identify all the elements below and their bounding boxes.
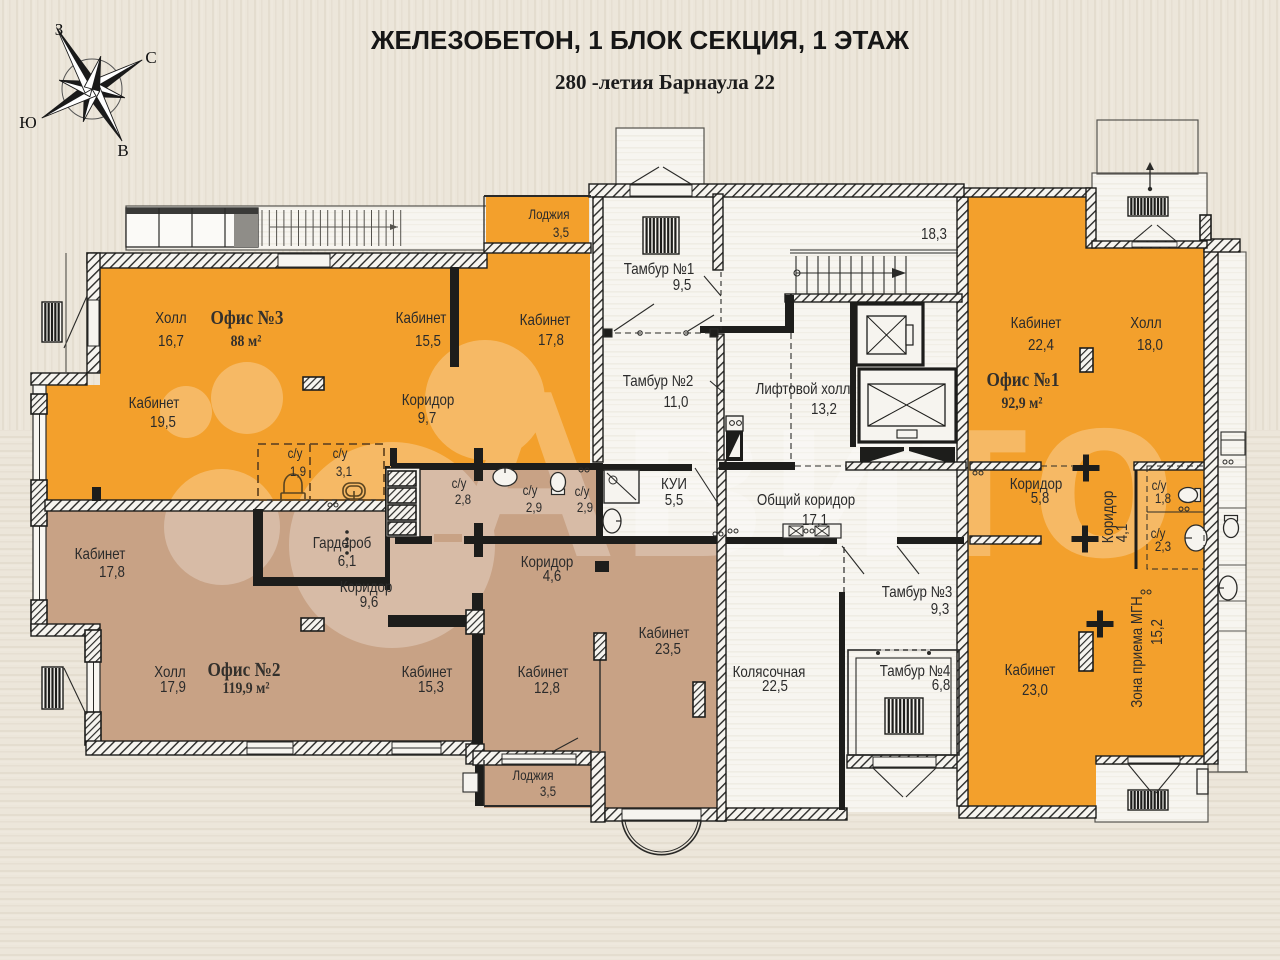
svg-text:Тамбур №2: Тамбур №2 xyxy=(623,373,694,390)
svg-text:Офис №3: Офис №3 xyxy=(211,307,284,330)
svg-text:Кабинет: Кабинет xyxy=(520,312,571,329)
svg-text:16,7: 16,7 xyxy=(158,333,184,350)
svg-text:3,5: 3,5 xyxy=(553,225,569,240)
svg-text:С: С xyxy=(145,48,156,67)
svg-text:Кабинет: Кабинет xyxy=(639,625,690,642)
svg-text:9,3: 9,3 xyxy=(931,601,950,618)
svg-text:Тамбур №3: Тамбур №3 xyxy=(882,584,953,601)
svg-text:18,0: 18,0 xyxy=(1137,337,1163,354)
svg-text:5,8: 5,8 xyxy=(1031,490,1050,507)
svg-text:19,5: 19,5 xyxy=(150,414,176,431)
svg-text:22,5: 22,5 xyxy=(762,678,788,695)
svg-text:23,5: 23,5 xyxy=(655,641,681,658)
svg-text:2,9: 2,9 xyxy=(577,500,593,515)
svg-text:2,9: 2,9 xyxy=(526,500,542,515)
svg-text:Холл: Холл xyxy=(1130,315,1161,332)
svg-text:9,7: 9,7 xyxy=(418,410,437,427)
svg-text:Гардероб: Гардероб xyxy=(313,535,372,552)
svg-text:Кабинет: Кабинет xyxy=(75,546,126,563)
svg-text:12,8: 12,8 xyxy=(534,680,560,697)
svg-text:4,1: 4,1 xyxy=(1114,524,1131,543)
svg-text:3,1: 3,1 xyxy=(336,464,352,479)
svg-text:с/у: с/у xyxy=(575,484,590,499)
svg-text:92,9 м²: 92,9 м² xyxy=(1002,395,1043,412)
svg-text:2,3: 2,3 xyxy=(1155,539,1171,554)
svg-text:3,5: 3,5 xyxy=(540,784,556,799)
svg-text:Кабинет: Кабинет xyxy=(396,310,447,327)
svg-text:Офис №2: Офис №2 xyxy=(208,659,281,682)
svg-text:Лифтовой холл: Лифтовой холл xyxy=(756,381,851,398)
svg-text:с/у: с/у xyxy=(452,476,467,491)
svg-text:1,9: 1,9 xyxy=(290,464,306,479)
svg-text:15,3: 15,3 xyxy=(418,679,444,696)
svg-text:15,2: 15,2 xyxy=(1149,619,1166,645)
svg-text:2,8: 2,8 xyxy=(455,492,471,507)
svg-text:с/у: с/у xyxy=(288,446,303,461)
svg-text:280 -летия Барнаула 22: 280 -летия Барнаула 22 xyxy=(555,70,775,94)
svg-text:9,5: 9,5 xyxy=(673,277,692,294)
svg-text:Кабинет: Кабинет xyxy=(518,664,569,681)
svg-text:6,1: 6,1 xyxy=(338,553,357,570)
svg-text:Общий коридор: Общий коридор xyxy=(757,492,855,509)
svg-text:17,1: 17,1 xyxy=(802,512,828,529)
svg-text:6,8: 6,8 xyxy=(932,677,951,694)
svg-text:4,6: 4,6 xyxy=(543,568,562,585)
svg-text:Зона приема МГН: Зона приема МГН xyxy=(1129,596,1146,708)
svg-text:Кабинет: Кабинет xyxy=(1005,662,1056,679)
svg-text:1,8: 1,8 xyxy=(1155,491,1171,506)
svg-text:15,5: 15,5 xyxy=(415,333,441,350)
svg-text:З: З xyxy=(55,20,64,39)
svg-text:17,8: 17,8 xyxy=(99,564,125,581)
svg-text:13,2: 13,2 xyxy=(811,401,837,418)
svg-text:Тамбур №1: Тамбур №1 xyxy=(624,261,695,278)
svg-text:22,4: 22,4 xyxy=(1028,337,1054,354)
svg-text:Лоджия: Лоджия xyxy=(512,768,553,783)
svg-text:Кабинет: Кабинет xyxy=(1011,315,1062,332)
svg-text:Холл: Холл xyxy=(155,310,186,327)
svg-text:11,0: 11,0 xyxy=(664,394,689,411)
svg-text:КУИ: КУИ xyxy=(661,476,687,493)
svg-text:В: В xyxy=(117,141,128,160)
svg-text:88 м²: 88 м² xyxy=(231,333,262,350)
svg-text:Офис №1: Офис №1 xyxy=(987,369,1060,392)
svg-text:Коридор: Коридор xyxy=(402,392,455,409)
svg-text:Лоджия: Лоджия xyxy=(528,207,569,222)
svg-text:5,5: 5,5 xyxy=(665,492,684,509)
svg-text:119,9 м²: 119,9 м² xyxy=(222,680,270,697)
svg-text:Кабинет: Кабинет xyxy=(129,395,180,412)
svg-text:ЖЕЛЕЗОБЕТОН, 1 БЛОК СЕКЦИЯ, 1: ЖЕЛЕЗОБЕТОН, 1 БЛОК СЕКЦИЯ, 1 ЭТАЖ xyxy=(370,25,910,55)
svg-text:с/у: с/у xyxy=(523,483,538,498)
svg-text:17,9: 17,9 xyxy=(160,679,186,696)
svg-text:Ю: Ю xyxy=(19,113,36,132)
svg-text:9,6: 9,6 xyxy=(360,594,379,611)
svg-text:с/у: с/у xyxy=(333,446,348,461)
svg-text:18,3: 18,3 xyxy=(921,226,947,243)
svg-text:17,8: 17,8 xyxy=(538,332,564,349)
svg-text:23,0: 23,0 xyxy=(1022,682,1048,699)
